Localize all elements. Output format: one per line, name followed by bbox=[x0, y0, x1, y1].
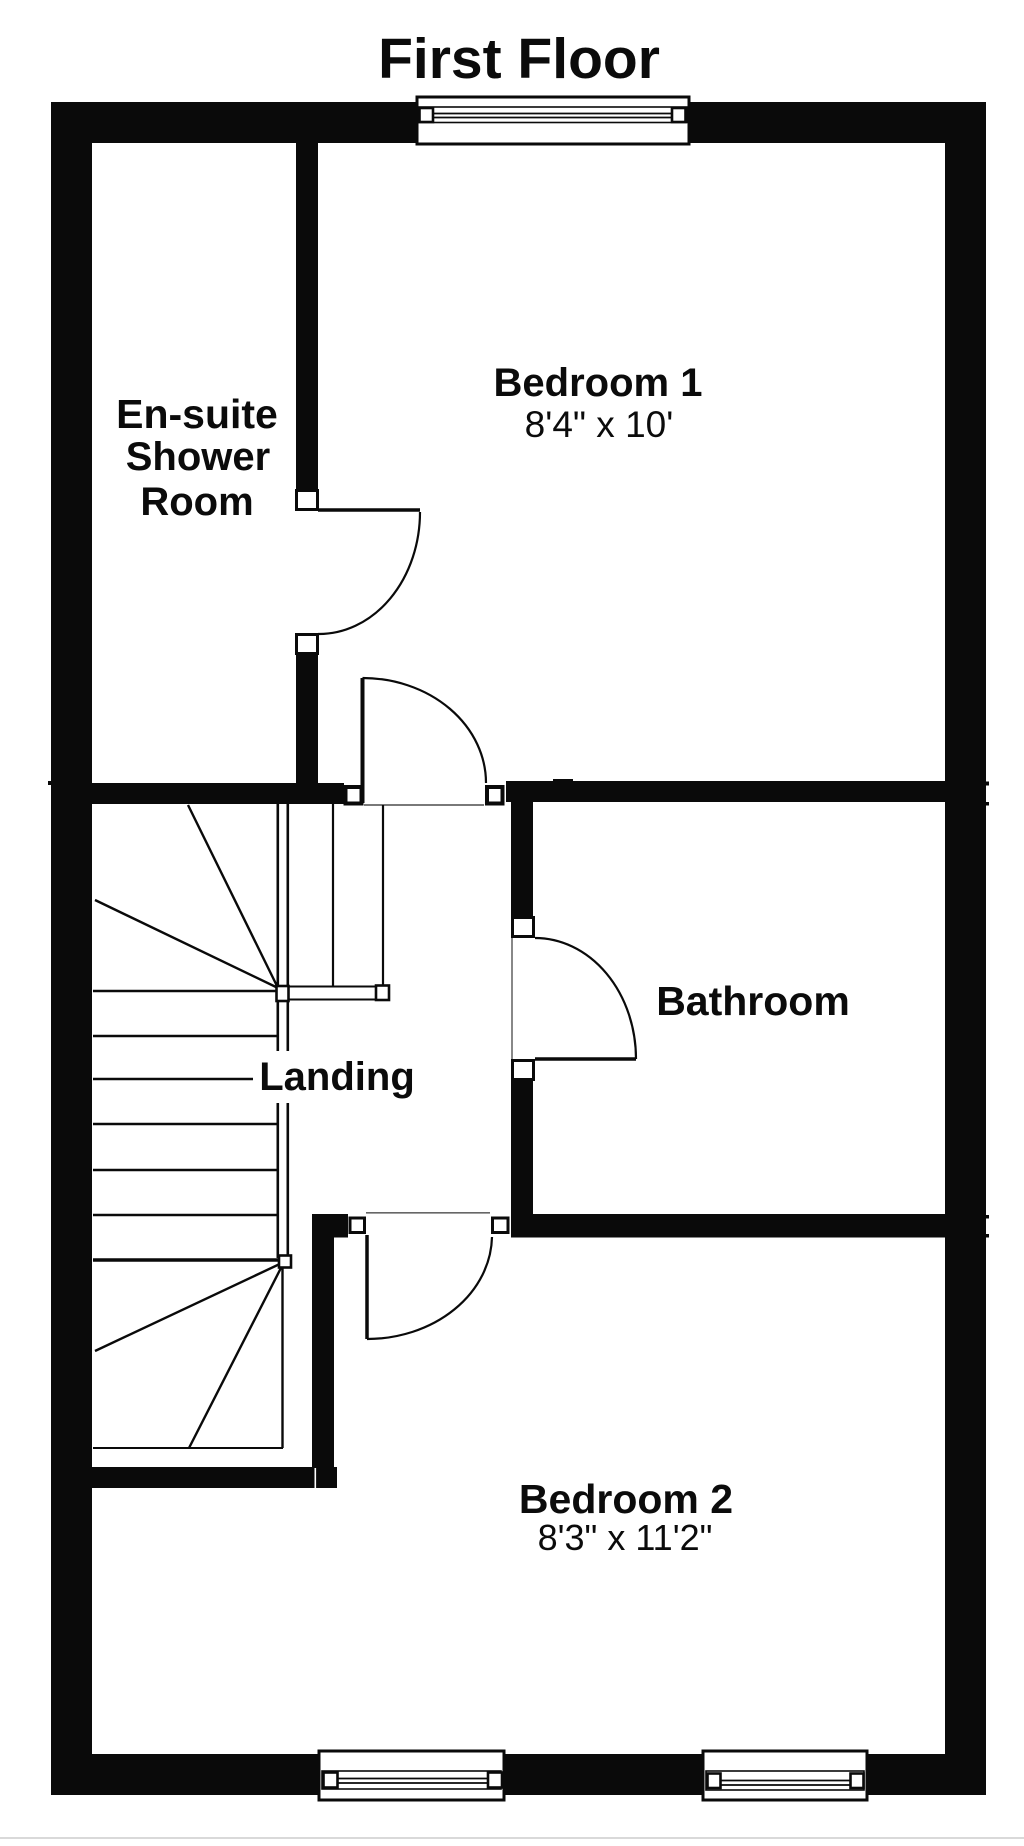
svg-text:Landing: Landing bbox=[259, 1055, 415, 1099]
svg-text:Bathroom: Bathroom bbox=[656, 978, 850, 1024]
svg-text:Shower: Shower bbox=[126, 435, 270, 479]
svg-text:8'4" x 10': 8'4" x 10' bbox=[525, 404, 674, 445]
svg-text:First Floor: First Floor bbox=[378, 27, 660, 91]
svg-text:Bedroom 1: Bedroom 1 bbox=[494, 361, 703, 405]
svg-text:En-suite: En-suite bbox=[116, 391, 278, 437]
svg-text:Room: Room bbox=[140, 480, 253, 524]
svg-text:Bedroom 2: Bedroom 2 bbox=[519, 1476, 733, 1522]
svg-text:8'3" x 11'2": 8'3" x 11'2" bbox=[538, 1517, 713, 1558]
